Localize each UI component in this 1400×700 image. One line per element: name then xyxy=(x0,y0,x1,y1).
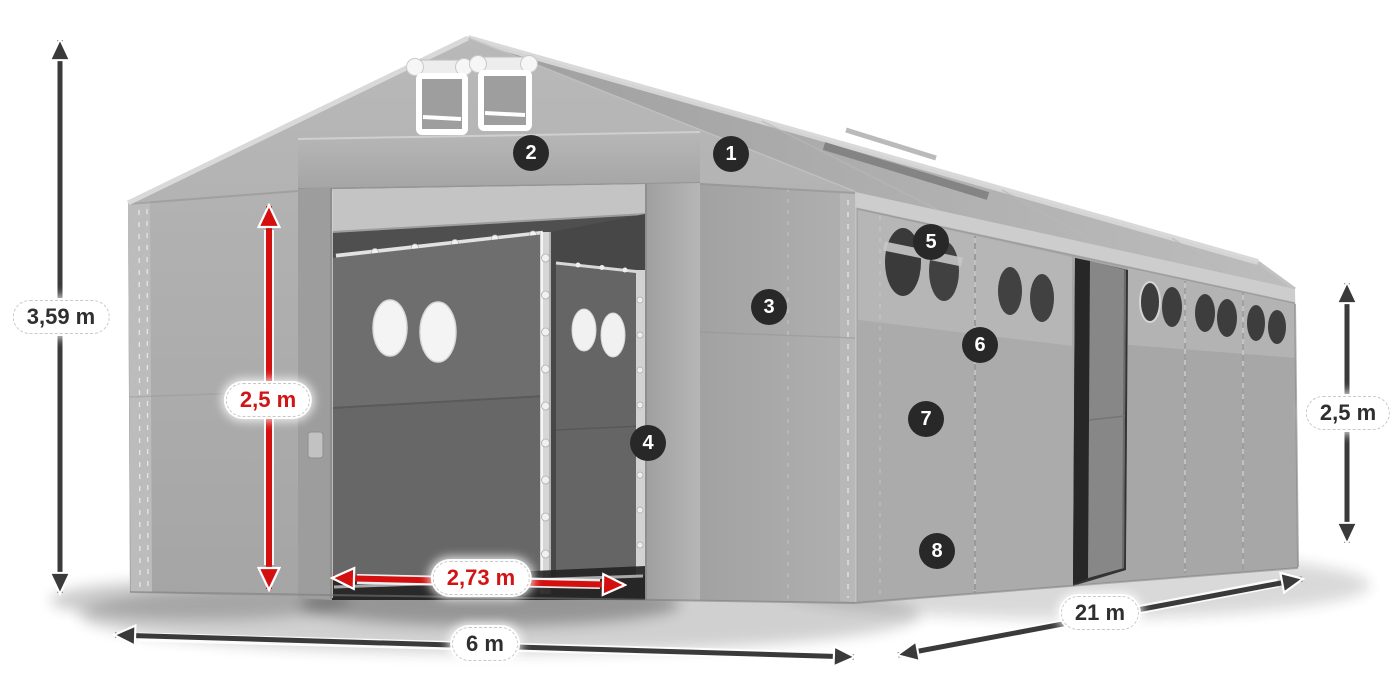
interior-divider-1 xyxy=(332,234,545,597)
callout-8-badge: 8 xyxy=(919,533,955,569)
callout-1-number: 1 xyxy=(725,144,736,164)
door-width-value: 2,73 m xyxy=(447,565,516,590)
front-width-value: 6 m xyxy=(466,631,504,656)
gable-vent-right xyxy=(470,56,538,129)
callout-5-badge: 5 xyxy=(913,224,949,260)
side-length-value: 21 m xyxy=(1075,600,1125,625)
divider-window-oval xyxy=(572,309,596,351)
gable-vent-left xyxy=(407,59,473,133)
total-height-value: 3,59 m xyxy=(27,304,96,329)
side-window-oval xyxy=(1140,282,1160,322)
side-entrance-opening xyxy=(1073,258,1128,586)
dimension-label-inner-height: 2,5 m xyxy=(226,383,310,417)
side-window-oval xyxy=(1217,299,1237,337)
side-window-oval xyxy=(1247,305,1265,341)
front-right-panel xyxy=(700,183,855,603)
divider-window-oval xyxy=(373,300,407,356)
dimension-label-side-height: 2,5 m xyxy=(1306,396,1390,430)
tent-illustration xyxy=(0,0,1400,700)
interior-divider-2 xyxy=(556,262,645,586)
callout-2-badge: 2 xyxy=(513,135,549,171)
vent-window-icon xyxy=(419,76,465,132)
front-header-beam xyxy=(298,132,700,189)
callout-3-number: 3 xyxy=(763,297,774,317)
callout-2-number: 2 xyxy=(525,143,536,163)
side-window-oval xyxy=(998,267,1022,315)
divider-window-oval xyxy=(601,313,625,357)
side-window-oval xyxy=(1030,274,1054,322)
interior-pole-2 xyxy=(636,270,645,576)
side-window-oval xyxy=(1268,310,1286,344)
side-near-lower-wall xyxy=(858,320,1075,601)
callout-8-number: 8 xyxy=(931,541,942,561)
door-handle xyxy=(308,432,323,458)
callout-7-number: 7 xyxy=(920,409,931,429)
callout-7-badge: 7 xyxy=(908,401,944,437)
vent-window-icon xyxy=(481,73,529,128)
dimension-label-front-width: 6 m xyxy=(452,627,518,661)
callout-6-number: 6 xyxy=(974,335,985,355)
tent-dimension-diagram: 1 2 3 4 5 6 7 8 3,59 m 2,5 m 2,73 m 6 m … xyxy=(0,0,1400,700)
callout-6-badge: 6 xyxy=(962,327,998,363)
callout-1-badge: 1 xyxy=(713,136,749,172)
callout-4-number: 4 xyxy=(642,433,653,453)
callout-4-badge: 4 xyxy=(630,425,666,461)
dimension-label-total-height: 3,59 m xyxy=(13,300,110,334)
side-window-oval xyxy=(1195,294,1215,332)
side-far-lower-wall xyxy=(1126,345,1298,576)
callout-3-badge: 3 xyxy=(751,289,787,325)
dimension-label-side-length: 21 m xyxy=(1061,596,1139,630)
side-height-value: 2,5 m xyxy=(1320,400,1376,425)
inner-height-value: 2,5 m xyxy=(240,387,296,412)
interior-pole-1 xyxy=(540,232,551,594)
side-window-oval xyxy=(1162,287,1182,327)
dimension-label-door-width: 2,73 m xyxy=(433,561,530,595)
callout-5-number: 5 xyxy=(925,232,936,252)
front-right-door-column xyxy=(645,183,700,600)
front-opening-interior xyxy=(332,184,645,600)
divider-window-oval xyxy=(420,302,456,362)
